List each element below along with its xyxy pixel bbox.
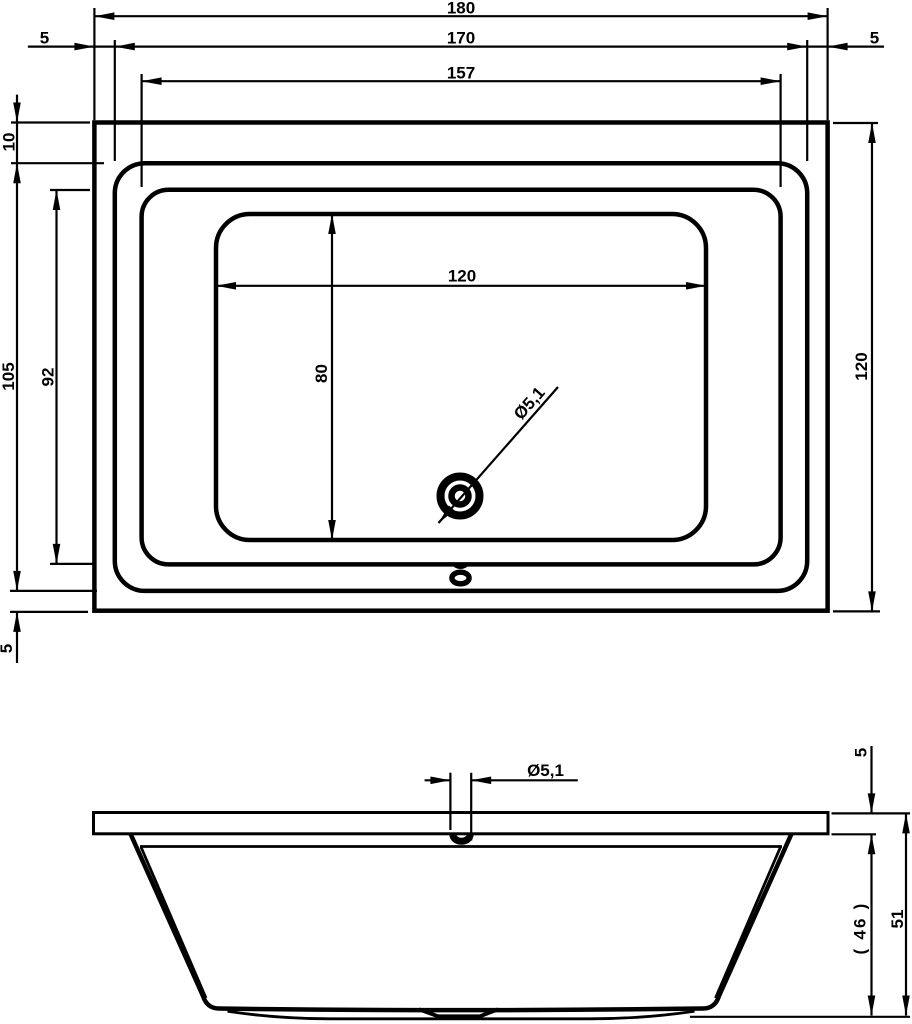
svg-text:5: 5 bbox=[0, 644, 16, 653]
svg-text:120: 120 bbox=[448, 267, 476, 286]
svg-text:170: 170 bbox=[447, 28, 475, 47]
svg-text:5: 5 bbox=[40, 28, 49, 47]
svg-text:( 46 ): ( 46 ) bbox=[851, 902, 870, 955]
svg-text:92: 92 bbox=[39, 368, 58, 387]
svg-text:157: 157 bbox=[447, 63, 475, 82]
svg-text:120: 120 bbox=[852, 352, 871, 380]
svg-text:51: 51 bbox=[888, 910, 907, 929]
svg-text:5: 5 bbox=[870, 28, 879, 47]
svg-text:5: 5 bbox=[851, 748, 870, 757]
svg-text:Ø5,1: Ø5,1 bbox=[527, 761, 564, 780]
svg-text:105: 105 bbox=[0, 362, 18, 390]
svg-text:10: 10 bbox=[0, 133, 19, 152]
svg-text:80: 80 bbox=[312, 364, 331, 383]
svg-text:180: 180 bbox=[447, 0, 475, 18]
